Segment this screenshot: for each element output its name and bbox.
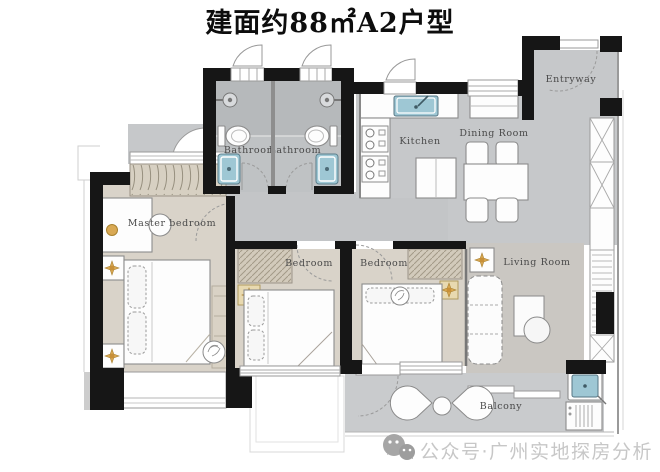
room-bedroom-1: Bedroom xyxy=(238,245,334,366)
round-table xyxy=(524,317,550,343)
dining-chair xyxy=(466,198,488,222)
room-label-bathroom-2: Bathroom xyxy=(269,145,321,156)
entry-door xyxy=(558,40,598,48)
window-fan xyxy=(233,45,262,66)
dining-chair xyxy=(466,142,488,166)
pillow xyxy=(128,266,146,308)
bedroom1-bay xyxy=(250,376,344,452)
washing-machine xyxy=(566,402,602,430)
window-fan xyxy=(302,45,331,66)
dining-chair xyxy=(496,142,518,166)
pillow xyxy=(128,312,146,354)
room-label-living: Living Room xyxy=(503,257,570,268)
sofa xyxy=(468,276,502,364)
room-label-dining: Dining Room xyxy=(459,128,528,139)
watermark-text: 公众号·广州实地探房分析 xyxy=(420,441,653,463)
toilet-tank xyxy=(330,126,337,146)
room-label-bedroom-2: Bedroom xyxy=(360,258,408,269)
floor-plan-page: Master bedroom Bathroom Bathroom xyxy=(0,0,660,472)
page-title: 建面约88㎡A2户型 xyxy=(205,7,454,39)
balcony-door xyxy=(356,364,400,375)
side-ball-table xyxy=(433,397,451,415)
pillow xyxy=(248,296,264,326)
room-label-kitchen: Kitchen xyxy=(399,136,440,147)
room-label-bedroom-1: Bedroom xyxy=(285,258,333,269)
pillow xyxy=(248,330,264,360)
window xyxy=(240,366,340,376)
toilet-tank xyxy=(218,126,225,146)
dining-table xyxy=(464,164,528,200)
window xyxy=(400,362,462,374)
window-fan xyxy=(386,59,415,80)
floor-plan-canvas: Master bedroom Bathroom Bathroom xyxy=(0,0,660,472)
wechat-icon xyxy=(383,434,415,460)
room-label-entryway: Entryway xyxy=(546,74,597,85)
sliding-door-panel xyxy=(514,391,560,398)
room-label-balcony: Balcony xyxy=(480,401,522,412)
plant-icon xyxy=(203,341,225,363)
dining-chair xyxy=(496,198,518,222)
gold-accessory xyxy=(107,225,118,236)
plant-icon xyxy=(391,287,409,305)
